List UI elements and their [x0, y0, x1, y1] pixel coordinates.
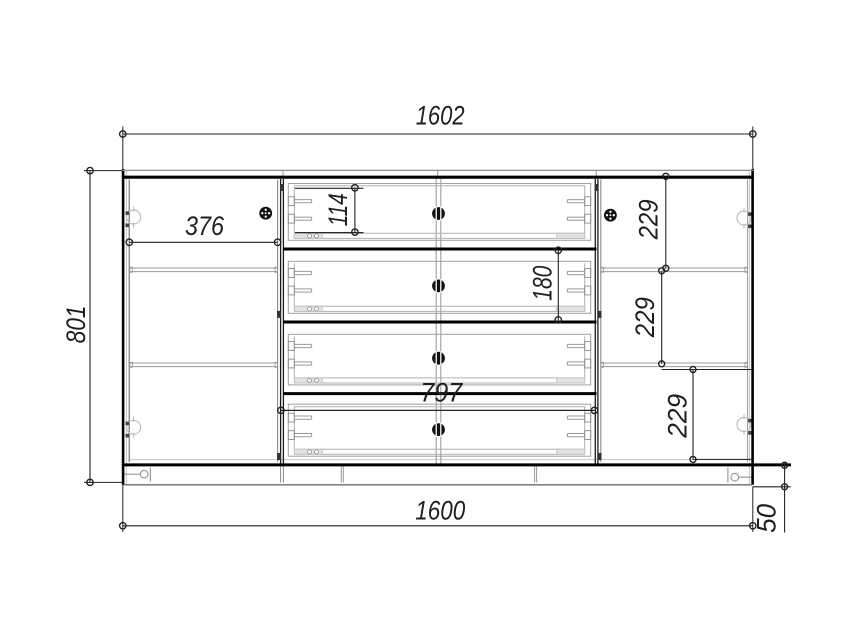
svg-text:1600: 1600	[415, 495, 465, 525]
svg-text:50: 50	[752, 504, 782, 533]
svg-text:114: 114	[323, 193, 353, 226]
svg-text:797: 797	[420, 377, 463, 407]
svg-text:229: 229	[662, 394, 692, 439]
svg-text:229: 229	[630, 297, 660, 338]
svg-text:1602: 1602	[416, 101, 465, 131]
svg-text:229: 229	[633, 199, 663, 240]
svg-text:376: 376	[185, 211, 225, 241]
svg-text:801: 801	[61, 305, 91, 343]
svg-text:180: 180	[527, 266, 557, 301]
